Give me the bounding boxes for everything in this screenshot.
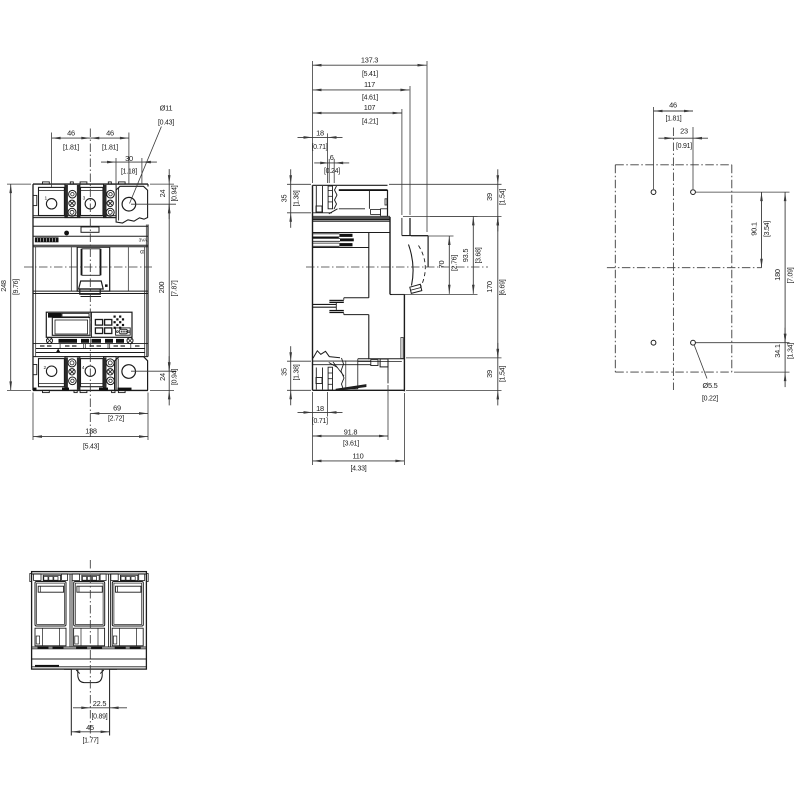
svg-text:107: 107: [364, 103, 376, 112]
svg-text:[5.43]: [5.43]: [83, 444, 99, 451]
svg-text:Ø11: Ø11: [160, 104, 173, 113]
svg-text:90.1: 90.1: [750, 222, 759, 236]
svg-text:[9.76]: [9.76]: [13, 279, 20, 295]
svg-text:23: 23: [680, 126, 688, 135]
svg-text:[1.81]: [1.81]: [102, 144, 118, 151]
svg-text:4: 4: [82, 365, 85, 371]
svg-text:1: 1: [44, 196, 47, 202]
svg-text:[7.09]: [7.09]: [787, 267, 794, 283]
svg-text:170: 170: [485, 281, 494, 293]
svg-text:[6.69]: [6.69]: [500, 279, 507, 295]
svg-text:[1.34]: [1.34]: [787, 343, 794, 359]
svg-text:[2.76]: [2.76]: [452, 255, 459, 271]
svg-text:[0.71]: [0.71]: [311, 144, 327, 151]
svg-text:137.3: 137.3: [361, 55, 378, 64]
svg-text:18: 18: [316, 129, 324, 138]
svg-text:[0.89]: [0.89]: [91, 713, 107, 720]
svg-text:35: 35: [279, 368, 288, 376]
svg-text:[5.41]: [5.41]: [362, 71, 378, 78]
svg-text:[1.77]: [1.77]: [82, 737, 98, 744]
svg-text:[3.54]: [3.54]: [764, 221, 771, 237]
svg-text:[0.24]: [0.24]: [324, 168, 340, 175]
svg-text:[3.68]: [3.68]: [476, 247, 483, 263]
svg-text:117: 117: [364, 80, 375, 89]
svg-text:6: 6: [330, 153, 334, 162]
svg-text:[1.18]: [1.18]: [121, 169, 137, 176]
svg-text:110: 110: [352, 451, 363, 460]
svg-text:[0.71]: [0.71]: [312, 418, 328, 425]
svg-text:39: 39: [485, 193, 494, 201]
svg-text:[4.33]: [4.33]: [350, 466, 366, 473]
svg-text:[0.94]: [0.94]: [172, 185, 179, 201]
svg-text:[1.81]: [1.81]: [665, 116, 681, 123]
svg-text:[1.38]: [1.38]: [294, 364, 301, 380]
svg-text:[1.54]: [1.54]: [500, 189, 507, 205]
svg-text:69: 69: [113, 403, 121, 412]
svg-text:24: 24: [158, 373, 167, 381]
svg-text:18: 18: [316, 404, 324, 413]
svg-text:200: 200: [157, 282, 166, 294]
svg-text:[3.61]: [3.61]: [343, 441, 359, 448]
svg-text:[4.21]: [4.21]: [362, 118, 378, 125]
svg-text:[1.81]: [1.81]: [63, 144, 79, 151]
svg-text:22.5: 22.5: [93, 699, 107, 708]
svg-text:[1.54]: [1.54]: [500, 366, 507, 382]
svg-text:[0.22]: [0.22]: [702, 396, 718, 403]
svg-text:3: 3: [83, 196, 86, 202]
svg-text:138: 138: [85, 427, 97, 436]
svg-text:Ø5.5: Ø5.5: [702, 381, 717, 390]
svg-text:[0.94]: [0.94]: [172, 369, 179, 385]
svg-text:91.8: 91.8: [344, 427, 358, 436]
svg-text:[0.43]: [0.43]: [158, 120, 174, 127]
svg-text:180: 180: [773, 269, 782, 281]
svg-text:[7.87]: [7.87]: [172, 280, 179, 296]
svg-text:46: 46: [669, 101, 677, 110]
svg-text:45: 45: [86, 723, 94, 732]
svg-text:39: 39: [485, 370, 494, 378]
svg-text:30: 30: [125, 154, 133, 163]
svg-text:24: 24: [158, 190, 167, 198]
svg-text:248: 248: [0, 280, 8, 292]
svg-text:α: α: [140, 249, 144, 256]
svg-text:35: 35: [279, 195, 288, 203]
svg-text:3VA: 3VA: [139, 237, 149, 243]
svg-text:[1.38]: [1.38]: [294, 190, 301, 206]
svg-text:46: 46: [106, 128, 114, 137]
svg-text:93.5: 93.5: [461, 249, 470, 263]
svg-text:2: 2: [43, 365, 46, 371]
svg-text:34.1: 34.1: [773, 344, 782, 358]
svg-text:[4.61]: [4.61]: [362, 95, 378, 102]
svg-text:[2.72]: [2.72]: [108, 416, 124, 423]
svg-text:[0.91]: [0.91]: [676, 143, 692, 150]
svg-text:46: 46: [67, 128, 75, 137]
